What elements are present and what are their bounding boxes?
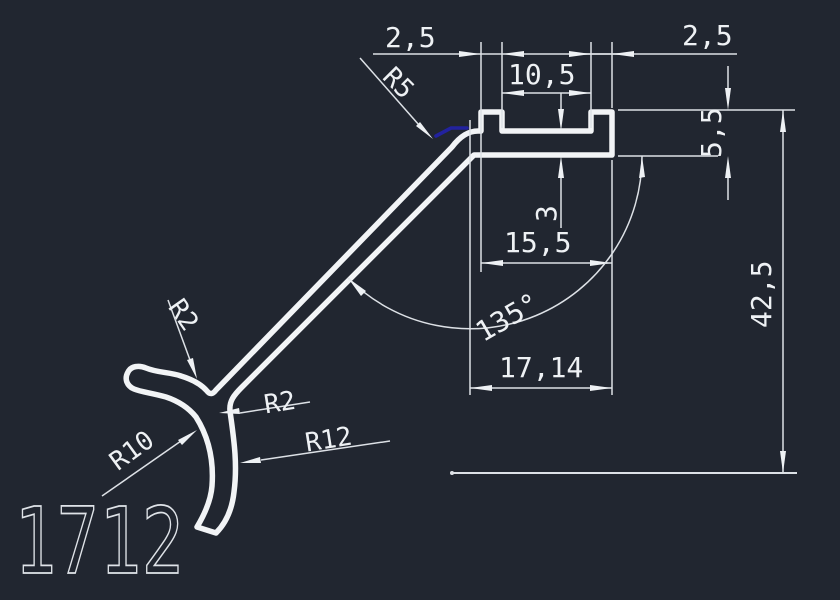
rad-r10-label[interactable]: R10	[104, 425, 160, 477]
dim-lip-left-label[interactable]: 2,5	[385, 21, 436, 54]
cad-viewport: 2,5 2,5 10,5 3 15,5 135° 1	[0, 0, 840, 600]
part-number[interactable]: 1712	[14, 488, 184, 595]
dim-horizontal-offset[interactable]: 17,14	[470, 351, 612, 391]
dim-groove-width-label[interactable]: 10,5	[508, 58, 575, 91]
baseline-endpoint-dot	[450, 471, 454, 475]
rad-r2-upper[interactable]: R2	[162, 294, 205, 379]
dim-rail-thickness-label[interactable]: 5,5	[695, 107, 728, 158]
dim-rail-thickness[interactable]: 5,5	[695, 66, 731, 200]
rad-r5[interactable]: R5	[360, 58, 433, 139]
dim-bend-angle-label[interactable]: 135°	[470, 286, 545, 348]
dim-horizontal-offset-label[interactable]: 17,14	[499, 351, 583, 384]
cad-drawing: 2,5 2,5 10,5 3 15,5 135° 1	[0, 0, 840, 600]
dim-web-thickness[interactable]: 3	[530, 93, 564, 228]
dim-bend-angle[interactable]: 135°	[348, 156, 645, 349]
dim-lip-right[interactable]: 2,5	[569, 19, 737, 57]
rad-r12-label[interactable]: R12	[303, 422, 354, 459]
dim-overall-height-label[interactable]: 42,5	[745, 261, 778, 328]
dim-overall-height[interactable]: 42,5	[745, 110, 786, 473]
rad-r10[interactable]: R10	[102, 425, 197, 496]
rad-r2-lower-label[interactable]: R2	[262, 386, 298, 421]
dim-web-thickness-label[interactable]: 3	[530, 205, 563, 222]
baseline[interactable]	[450, 471, 797, 475]
dim-groove-outer[interactable]: 15,5	[481, 226, 612, 266]
rad-r5-label[interactable]: R5	[376, 62, 419, 105]
dim-groove-outer-label[interactable]: 15,5	[504, 226, 571, 259]
rad-r12[interactable]: R12	[240, 422, 390, 463]
dim-groove-width[interactable]: 10,5	[502, 58, 591, 96]
dim-lip-right-label[interactable]: 2,5	[682, 19, 733, 52]
dim-lip-left[interactable]: 2,5	[373, 21, 634, 57]
